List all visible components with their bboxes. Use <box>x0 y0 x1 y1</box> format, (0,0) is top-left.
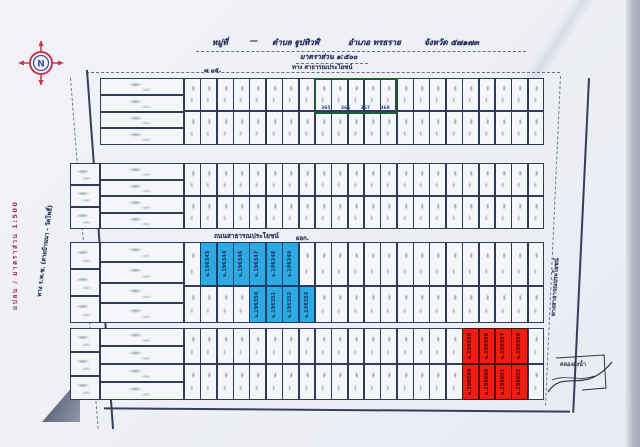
plot <box>413 196 430 229</box>
plot <box>380 364 397 400</box>
plot <box>233 328 250 364</box>
plot-wide <box>100 95 184 112</box>
plot <box>331 111 348 145</box>
plot <box>479 78 496 111</box>
plot <box>315 286 332 323</box>
plot <box>528 163 545 196</box>
plot <box>299 78 316 111</box>
plot <box>528 328 545 364</box>
plot <box>348 364 365 400</box>
plot-edge <box>70 185 100 207</box>
plot-highlighted-blue: ฉ.196348 <box>266 242 283 286</box>
plot <box>495 111 512 145</box>
scanned-survey-map-page: N หมู่ที่ — ตำบล ฐูปทิวฬ์ อำเภอ ทรธราย จ… <box>0 0 640 447</box>
plot-wide <box>100 242 184 262</box>
plot <box>462 242 479 286</box>
plot <box>479 196 496 229</box>
plot <box>233 163 250 196</box>
plot <box>479 286 496 323</box>
plot <box>348 111 365 145</box>
plot-parcel-number: ฉ.196595 <box>463 329 478 363</box>
plot <box>348 286 365 323</box>
plot <box>233 286 250 323</box>
plot <box>299 196 316 229</box>
plot-edge <box>70 242 100 269</box>
plot <box>397 286 414 323</box>
plot <box>282 196 299 229</box>
plot <box>364 196 381 229</box>
plot <box>184 364 201 400</box>
plot <box>429 328 446 364</box>
plot <box>282 78 299 111</box>
plot <box>249 328 266 364</box>
plot <box>299 364 316 400</box>
plot <box>429 163 446 196</box>
plot <box>380 111 397 145</box>
plot-highlighted-blue: ฉ.196350 <box>249 286 266 323</box>
plot-parcel-number: ฉ.196347 <box>250 243 265 285</box>
plot <box>249 111 266 145</box>
plot <box>479 242 496 286</box>
plot <box>413 286 430 323</box>
plot <box>462 196 479 229</box>
canal-sketch-label: คลองส่งน้ำ <box>560 359 586 368</box>
plot <box>184 286 201 323</box>
plot <box>429 78 446 111</box>
plot-highlighted-blue: ฉ.196343 <box>200 242 217 286</box>
plot-edge <box>70 163 100 185</box>
plot-wide <box>100 196 184 213</box>
plot <box>364 364 381 400</box>
plot <box>249 163 266 196</box>
plot <box>249 364 266 400</box>
plot <box>413 78 430 111</box>
plot <box>397 242 414 286</box>
plot <box>528 364 545 400</box>
plot <box>249 196 266 229</box>
plot-edge <box>70 269 100 296</box>
plot <box>511 111 528 145</box>
plot <box>528 242 545 286</box>
plot <box>511 196 528 229</box>
plot <box>495 163 512 196</box>
plot <box>200 163 217 196</box>
plot <box>446 328 463 364</box>
plot-wide <box>100 128 184 145</box>
plot <box>282 364 299 400</box>
plot <box>413 163 430 196</box>
plot <box>364 163 381 196</box>
plot <box>413 111 430 145</box>
plot <box>429 242 446 286</box>
plot-highlighted-blue: ฉ.196344 <box>217 242 234 286</box>
plot <box>315 364 332 400</box>
plot <box>397 111 414 145</box>
plot-parcel-number: ฉ.196596 <box>480 329 495 363</box>
plot <box>348 328 365 364</box>
plot <box>446 242 463 286</box>
plot-wide <box>100 283 184 303</box>
plot <box>217 78 234 111</box>
plot-parcel-number: ฉ.196599 <box>463 365 478 399</box>
plot <box>331 196 348 229</box>
plot <box>495 78 512 111</box>
plot <box>217 163 234 196</box>
plot <box>495 286 512 323</box>
plot <box>364 242 381 286</box>
plot <box>233 364 250 400</box>
plot <box>184 78 201 111</box>
plot-highlighted-blue: ฉ.196349 <box>282 242 299 286</box>
plot <box>462 111 479 145</box>
green-box-plot-number: 367 <box>361 106 370 111</box>
plot <box>315 328 332 364</box>
plot <box>348 196 365 229</box>
plot <box>495 242 512 286</box>
plot <box>331 242 348 286</box>
plot <box>282 328 299 364</box>
plot-parcel-number: ฉ.196602 <box>512 365 527 399</box>
canal-sketch: คลองส่งน้ำ <box>544 350 616 406</box>
plot <box>364 286 381 323</box>
plot-parcel-number: ฉ.196601 <box>496 365 511 399</box>
plot <box>200 286 217 323</box>
plot <box>380 242 397 286</box>
plot <box>184 163 201 196</box>
plot <box>299 242 316 286</box>
plot <box>511 163 528 196</box>
plot-parcel-number: ฉ.196349 <box>283 243 298 285</box>
plot <box>413 242 430 286</box>
plot <box>397 328 414 364</box>
plot <box>184 328 201 364</box>
plot-edge <box>70 352 100 376</box>
plot <box>200 196 217 229</box>
plot <box>348 242 365 286</box>
plot <box>200 364 217 400</box>
plot <box>462 286 479 323</box>
plot <box>315 242 332 286</box>
plot <box>282 163 299 196</box>
plot <box>446 286 463 323</box>
plot-parcel-number: ฉ.196597 <box>496 329 511 363</box>
plot-highlighted-red: ฉ.196599 <box>462 364 479 400</box>
plot <box>479 163 496 196</box>
plot-wide <box>100 180 184 197</box>
plot <box>331 364 348 400</box>
plot <box>249 78 266 111</box>
plot-edge <box>70 376 100 400</box>
plot-highlighted-red: ฉ.196598 <box>511 328 528 364</box>
green-box-plot-number: 365 <box>321 106 330 111</box>
plot <box>233 196 250 229</box>
plot-highlighted-red: ฉ.196602 <box>511 364 528 400</box>
plot <box>364 328 381 364</box>
plot-wide <box>100 262 184 282</box>
plot <box>511 242 528 286</box>
plot <box>266 196 283 229</box>
plot <box>331 286 348 323</box>
plot-parcel-number: ฉ.196351 <box>267 287 282 322</box>
plot <box>397 163 414 196</box>
plot <box>233 111 250 145</box>
plot-edge <box>70 207 100 229</box>
plot-wide <box>100 346 184 364</box>
plot <box>266 78 283 111</box>
plot <box>495 196 512 229</box>
plot <box>266 111 283 145</box>
plot-wide <box>100 364 184 382</box>
plot <box>200 111 217 145</box>
plot-wide <box>100 78 184 95</box>
plot-wide <box>100 328 184 346</box>
plot <box>462 78 479 111</box>
plot <box>315 163 332 196</box>
plot <box>315 196 332 229</box>
plot <box>429 111 446 145</box>
plot-parcel-number: ฉ.196598 <box>512 329 527 363</box>
plot-wide <box>100 163 184 180</box>
plot <box>528 196 545 229</box>
plot <box>266 163 283 196</box>
plot <box>413 364 430 400</box>
plot-parcel-number: ฉ.196346 <box>234 243 249 285</box>
plot <box>184 242 201 286</box>
plot <box>413 328 430 364</box>
plot <box>397 78 414 111</box>
plot <box>528 111 545 145</box>
plot <box>217 328 234 364</box>
plot <box>511 78 528 111</box>
plot <box>282 111 299 145</box>
plot <box>528 78 545 111</box>
plot-highlighted-red: ฉ.196596 <box>479 328 496 364</box>
plot-parcel-number: ฉ.196352 <box>283 287 298 322</box>
plot <box>429 196 446 229</box>
plot <box>217 111 234 145</box>
plot <box>348 163 365 196</box>
plot <box>511 286 528 323</box>
plot-edge <box>70 328 100 352</box>
plot-highlighted-red: ฉ.196597 <box>495 328 512 364</box>
plot-wide <box>100 112 184 129</box>
plot <box>233 78 250 111</box>
plot-edge <box>70 296 100 323</box>
plot-parcel-number: ฉ.196353 <box>300 287 315 322</box>
plot-highlighted-blue: ฉ.196353 <box>299 286 316 323</box>
plot <box>462 163 479 196</box>
plot <box>200 328 217 364</box>
plot <box>299 328 316 364</box>
plot-highlighted-red: ฉ.196600 <box>479 364 496 400</box>
plot-highlighted-blue: ฉ.196346 <box>233 242 250 286</box>
plot <box>315 111 332 145</box>
plot <box>331 163 348 196</box>
plot <box>528 286 545 323</box>
plot <box>397 196 414 229</box>
plot <box>380 163 397 196</box>
green-box-plot-number: 366 <box>341 106 350 111</box>
plot <box>380 328 397 364</box>
green-box-plot-number: 368 <box>380 106 389 111</box>
plot <box>380 196 397 229</box>
plot <box>446 163 463 196</box>
plot-parcel-number: ฉ.196600 <box>480 365 495 399</box>
plot <box>446 111 463 145</box>
plot <box>266 364 283 400</box>
plot-parcel-number: ฉ.196344 <box>218 243 233 285</box>
plot-highlighted-blue: ฉ.196352 <box>282 286 299 323</box>
plot <box>217 364 234 400</box>
plot-highlighted-blue: ฉ.196351 <box>266 286 283 323</box>
green-highlight-box: 365366367368 <box>314 78 397 114</box>
plot-highlighted-red: ฉ.196601 <box>495 364 512 400</box>
plot <box>364 111 381 145</box>
plot <box>446 78 463 111</box>
plot <box>184 111 201 145</box>
plot <box>380 286 397 323</box>
plot <box>200 78 217 111</box>
plot <box>217 196 234 229</box>
plot <box>446 364 463 400</box>
plot <box>184 196 201 229</box>
plot <box>429 364 446 400</box>
plot <box>266 328 283 364</box>
plot-parcel-number: ฉ.196350 <box>250 287 265 322</box>
plot <box>299 163 316 196</box>
plot-highlighted-red: ฉ.196595 <box>462 328 479 364</box>
plot <box>299 111 316 145</box>
plot <box>331 328 348 364</box>
plot-parcel-number: ฉ.196348 <box>267 243 282 285</box>
plot <box>446 196 463 229</box>
plot-wide <box>100 382 184 400</box>
plot <box>479 111 496 145</box>
plot <box>397 364 414 400</box>
plot <box>429 286 446 323</box>
plot-parcel-number: ฉ.196343 <box>201 243 216 285</box>
plot-wide <box>100 303 184 323</box>
plot <box>217 286 234 323</box>
plot-wide <box>100 213 184 230</box>
plot-highlighted-blue: ฉ.196347 <box>249 242 266 286</box>
